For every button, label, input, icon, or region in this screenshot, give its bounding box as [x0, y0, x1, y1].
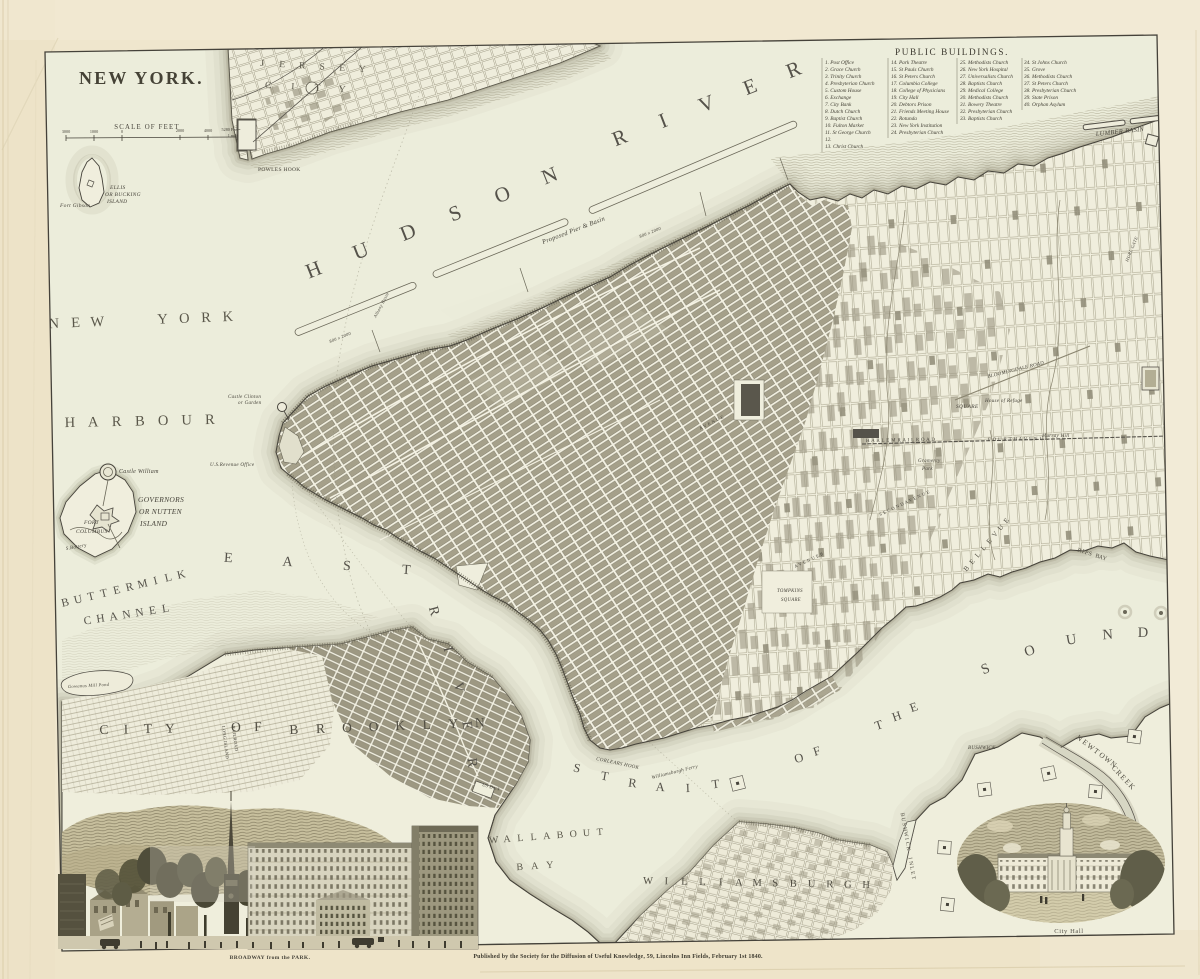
svg-text:Gramercy: Gramercy: [918, 459, 941, 464]
svg-text:4000: 4000: [204, 128, 212, 133]
svg-text:B: B: [289, 722, 299, 737]
svg-text:1. Post Office: 1. Post Office: [825, 59, 855, 66]
svg-text:40. Orphan Asylum: 40. Orphan Asylum: [1024, 102, 1065, 108]
svg-text:Fort Gibson: Fort Gibson: [59, 203, 90, 209]
svg-text:12.: 12.: [825, 137, 832, 143]
svg-text:G: G: [844, 880, 852, 891]
svg-text:S: S: [319, 62, 325, 72]
svg-text:ELLIS: ELLIS: [109, 185, 126, 191]
svg-text:E: E: [71, 315, 81, 331]
svg-text:B: B: [135, 413, 145, 429]
svg-text:E: E: [279, 60, 286, 70]
svg-text:L: L: [530, 832, 537, 843]
svg-text:32. Presbyterian Church: 32. Presbyterian Church: [960, 109, 1012, 115]
svg-text:30. Methodists Church: 30. Methodists Church: [960, 95, 1009, 101]
svg-text:COLUMBUS: COLUMBUS: [76, 529, 108, 535]
svg-text:T: T: [401, 563, 411, 579]
svg-text:29. Medical College: 29. Medical College: [960, 88, 1004, 94]
svg-text:33. Baptists Church: 33. Baptists Church: [960, 116, 1002, 122]
svg-text:31. Bowery Theatre: 31. Bowery Theatre: [960, 102, 1002, 108]
svg-text:14. Park Theatre: 14. Park Theatre: [891, 60, 927, 66]
svg-text:34. St Johns Church: 34. St Johns Church: [1024, 60, 1067, 66]
svg-text:5. Custom House: 5. Custom House: [825, 88, 862, 94]
svg-text:24. Presbyterian Church: 24. Presbyterian Church: [891, 130, 943, 136]
svg-text:25. Methodists Church: 25. Methodists Church: [960, 60, 1009, 66]
svg-text:2000: 2000: [176, 128, 184, 133]
svg-text:W: W: [489, 835, 500, 847]
svg-text:M: M: [752, 878, 762, 889]
svg-text:ISLAND: ISLAND: [106, 199, 127, 205]
svg-text:NEW YORK.: NEW YORK.: [79, 68, 204, 88]
svg-text:9. Baptist Church: 9. Baptist Church: [825, 116, 863, 122]
svg-text:E: E: [339, 64, 346, 74]
svg-text:28. Baptists Church: 28. Baptists Church: [960, 81, 1002, 87]
svg-text:O: O: [158, 413, 169, 429]
svg-text:F: F: [254, 719, 262, 734]
svg-text:or Garden: or Garden: [238, 401, 262, 406]
svg-text:K: K: [395, 718, 406, 733]
svg-text:A: A: [735, 878, 743, 889]
svg-text:O: O: [342, 720, 353, 735]
svg-text:1000: 1000: [90, 129, 98, 134]
svg-text:20. Debtors Prison: 20. Debtors Prison: [891, 102, 932, 108]
svg-text:38. Presbyterian Church: 38. Presbyterian Church: [1024, 88, 1076, 94]
svg-text:U: U: [181, 412, 192, 428]
svg-text:B: B: [790, 879, 797, 890]
svg-text:R: R: [112, 414, 122, 430]
svg-text:House of Refuge: House of Refuge: [984, 399, 1023, 404]
svg-text:11. St George Church: 11. St George Church: [825, 130, 871, 136]
svg-text:R: R: [205, 412, 215, 428]
svg-text:37. St Peters Church: 37. St Peters Church: [1024, 81, 1068, 87]
svg-text:23. New York Institution: 23. New York Institution: [891, 123, 943, 129]
svg-text:27. Universalists Church: 27. Universalists Church: [960, 74, 1013, 80]
svg-text:A: A: [88, 414, 99, 430]
svg-text:L: L: [517, 833, 524, 844]
svg-text:C: C: [265, 81, 272, 91]
svg-text:I: I: [291, 82, 295, 92]
svg-text:City Hall: City Hall: [1054, 928, 1083, 935]
svg-text:0: 0: [121, 129, 123, 134]
svg-text:O: O: [179, 311, 190, 327]
svg-text:BUSHWICK: BUSHWICK: [968, 746, 996, 751]
svg-text:16. St Peters Church: 16. St Peters Church: [891, 74, 935, 80]
svg-text:22. Rotunda: 22. Rotunda: [891, 116, 917, 122]
svg-text:SCALE OF FEET: SCALE OF FEET: [114, 124, 179, 131]
svg-text:B: B: [516, 862, 524, 873]
svg-text:18. College of Physicians: 18. College of Physicians: [891, 87, 945, 94]
svg-text:6. Exchange: 6. Exchange: [825, 95, 852, 101]
svg-text:O: O: [368, 719, 379, 734]
svg-text:39. State Prison: 39. State Prison: [1024, 95, 1058, 101]
svg-text:U: U: [808, 879, 816, 890]
svg-text:SQUARE: SQUARE: [956, 404, 979, 410]
svg-text:W: W: [90, 314, 105, 331]
svg-text:T: T: [144, 721, 153, 736]
svg-text:O: O: [569, 829, 577, 841]
svg-text:OR NUTTEN: OR NUTTEN: [139, 507, 183, 516]
svg-text:3. Trinity Church: 3. Trinity Church: [825, 74, 862, 80]
svg-text:S: S: [343, 559, 352, 574]
svg-text:R: R: [826, 879, 833, 890]
svg-text:TOMPKINS: TOMPKINS: [777, 589, 803, 594]
svg-text:I: I: [686, 781, 691, 795]
svg-text:35. Grove: 35. Grove: [1024, 67, 1046, 73]
svg-text:U.S.Revenue Office: U.S.Revenue Office: [210, 463, 255, 468]
svg-text:Y: Y: [157, 311, 169, 327]
svg-text:R: R: [201, 310, 212, 326]
svg-text:N: N: [475, 715, 486, 730]
svg-text:N: N: [1102, 627, 1114, 644]
svg-text:Park: Park: [921, 467, 933, 472]
svg-text:8. Dutch Church: 8. Dutch Church: [825, 109, 861, 115]
svg-text:5280 Feet=: 5280 Feet=: [222, 127, 242, 132]
svg-text:Published by the Society for t: Published by the Society for the Diffusi…: [473, 954, 763, 960]
svg-text:A: A: [282, 555, 294, 571]
svg-text:F O U R T H A V E N U E: F O U R T H A V E N U E: [988, 437, 1048, 443]
svg-text:S: S: [772, 878, 778, 889]
svg-text:A: A: [655, 780, 665, 794]
svg-text:C: C: [99, 722, 108, 737]
svg-text:Y: Y: [338, 85, 346, 95]
svg-text:7. City Bank: 7. City Bank: [825, 102, 852, 108]
svg-text:H: H: [65, 415, 76, 431]
svg-text:Y: Y: [546, 860, 554, 871]
svg-text:BROADWAY from the PARK.: BROADWAY from the PARK.: [230, 955, 311, 961]
svg-text:Y: Y: [448, 716, 459, 731]
svg-text:4. Presbyterian Church: 4. Presbyterian Church: [825, 81, 875, 87]
svg-text:Y: Y: [358, 65, 366, 75]
svg-text:R: R: [316, 721, 326, 736]
svg-text:D: D: [1138, 625, 1148, 641]
svg-text:POWLES HOOK: POWLES HOOK: [258, 167, 301, 173]
svg-text:13. Christ Church: 13. Christ Church: [825, 144, 864, 150]
svg-text:Y: Y: [165, 721, 175, 736]
svg-text:ISLAND: ISLAND: [139, 519, 168, 528]
svg-text:36. Methodists Church: 36. Methodists Church: [1024, 74, 1073, 80]
svg-text:2. Grace Church: 2. Grace Church: [825, 67, 861, 73]
svg-text:PUBLIC BUILDINGS.: PUBLIC BUILDINGS.: [895, 47, 1009, 57]
svg-text:T: T: [314, 84, 321, 94]
svg-text:Castle Clinton: Castle Clinton: [228, 395, 261, 400]
svg-text:H: H: [862, 880, 870, 891]
svg-text:1 mile: 1 mile: [228, 133, 239, 138]
svg-text:15. St Pauls Church: 15. St Pauls Church: [891, 67, 934, 73]
svg-text:OR BUCKING: OR BUCKING: [105, 192, 141, 198]
svg-text:I: I: [124, 722, 129, 737]
svg-text:W: W: [643, 876, 653, 887]
svg-text:L: L: [699, 877, 706, 888]
svg-text:GOVERNORS: GOVERNORS: [138, 495, 184, 504]
svg-text:Castle William: Castle William: [119, 469, 159, 475]
svg-text:B: B: [556, 830, 564, 841]
svg-text:L: L: [681, 877, 688, 888]
svg-text:21. Friends Meeting House: 21. Friends Meeting House: [891, 109, 950, 115]
svg-text:17. Columbia College: 17. Columbia College: [891, 81, 938, 87]
svg-text:FORT: FORT: [83, 520, 100, 526]
svg-text:K: K: [222, 309, 234, 325]
svg-text:T: T: [596, 827, 603, 838]
svg-text:10. Fulton Market: 10. Fulton Market: [825, 123, 864, 129]
svg-text:L: L: [422, 717, 431, 732]
svg-text:E: E: [223, 551, 233, 567]
svg-text:SQUARE: SQUARE: [781, 598, 801, 603]
svg-text:3000: 3000: [62, 129, 70, 134]
svg-text:26. New York Hospital: 26. New York Hospital: [960, 67, 1008, 73]
svg-text:19. City Hall: 19. City Hall: [891, 95, 919, 101]
